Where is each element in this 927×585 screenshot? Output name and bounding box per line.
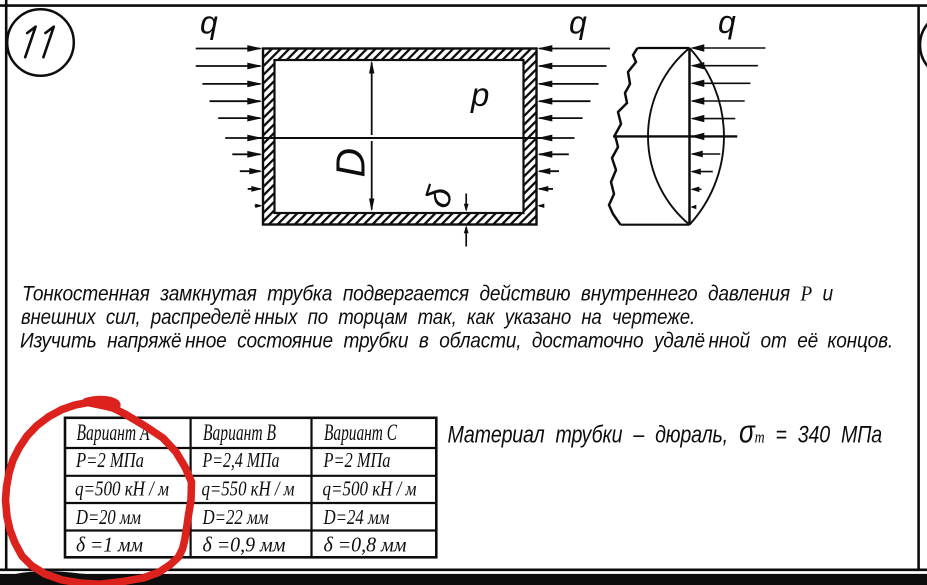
svg-text:q=500 кН / м: q=500 кН / м xyxy=(75,476,169,500)
svg-text:q=500 кН / м: q=500 кН / м xyxy=(323,476,417,500)
svg-text:q: q xyxy=(200,5,218,41)
svg-text:δ =0,8 мм: δ =0,8 мм xyxy=(324,533,407,557)
svg-text:D=24 мм: D=24 мм xyxy=(323,505,390,529)
svg-text:Р=2,4 МПа: Р=2,4 МПа xyxy=(202,448,280,472)
svg-text:D=20 мм: D=20 мм xyxy=(75,505,141,529)
svg-text:q: q xyxy=(718,4,736,40)
svg-text:Вариант В: Вариант В xyxy=(203,420,276,446)
svg-text:δ =1 мм: δ =1 мм xyxy=(76,533,143,557)
svg-text:q=550 кН / м: q=550 кН / м xyxy=(202,476,295,500)
svg-text:q: q xyxy=(569,5,587,41)
svg-text:Р=2 МПа: Р=2 МПа xyxy=(75,448,144,472)
svg-text:D: D xyxy=(328,148,374,178)
svg-text:Вариант С: Вариант С xyxy=(324,420,397,446)
svg-text:D=22 мм: D=22 мм xyxy=(202,505,269,529)
svg-text:внешних сил, распределё нных п: внешних сил, распределё нных по торцам т… xyxy=(21,306,695,329)
svg-text:Р=2 МПа: Р=2 МПа xyxy=(323,448,391,472)
svg-text:Изучить напряжё нное состояние: Изучить напряжё нное состояние трубки в … xyxy=(20,329,893,352)
svg-text:Тонкостенная замкнутая трубка: Тонкостенная замкнутая трубка подвергает… xyxy=(22,281,833,305)
svg-text:p: p xyxy=(470,76,489,113)
svg-text:δ =0,9 мм: δ =0,9 мм xyxy=(203,533,286,557)
